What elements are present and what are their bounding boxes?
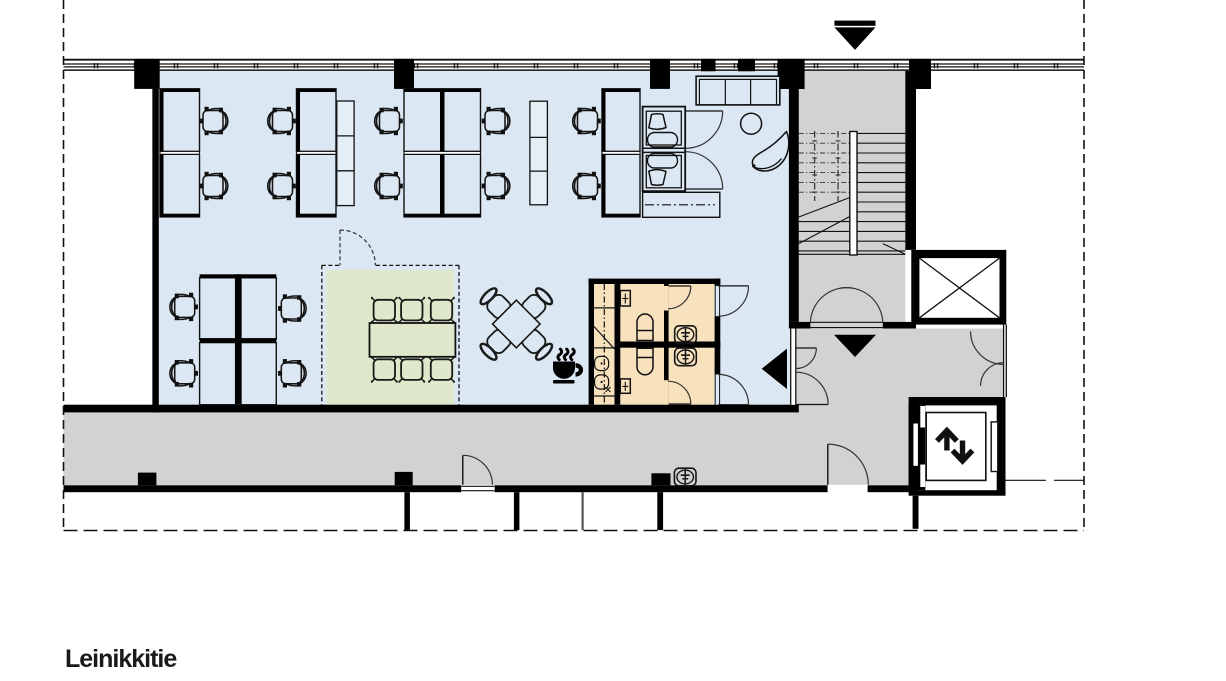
- svg-text:Leinikkitie: Leinikkitie: [65, 645, 177, 673]
